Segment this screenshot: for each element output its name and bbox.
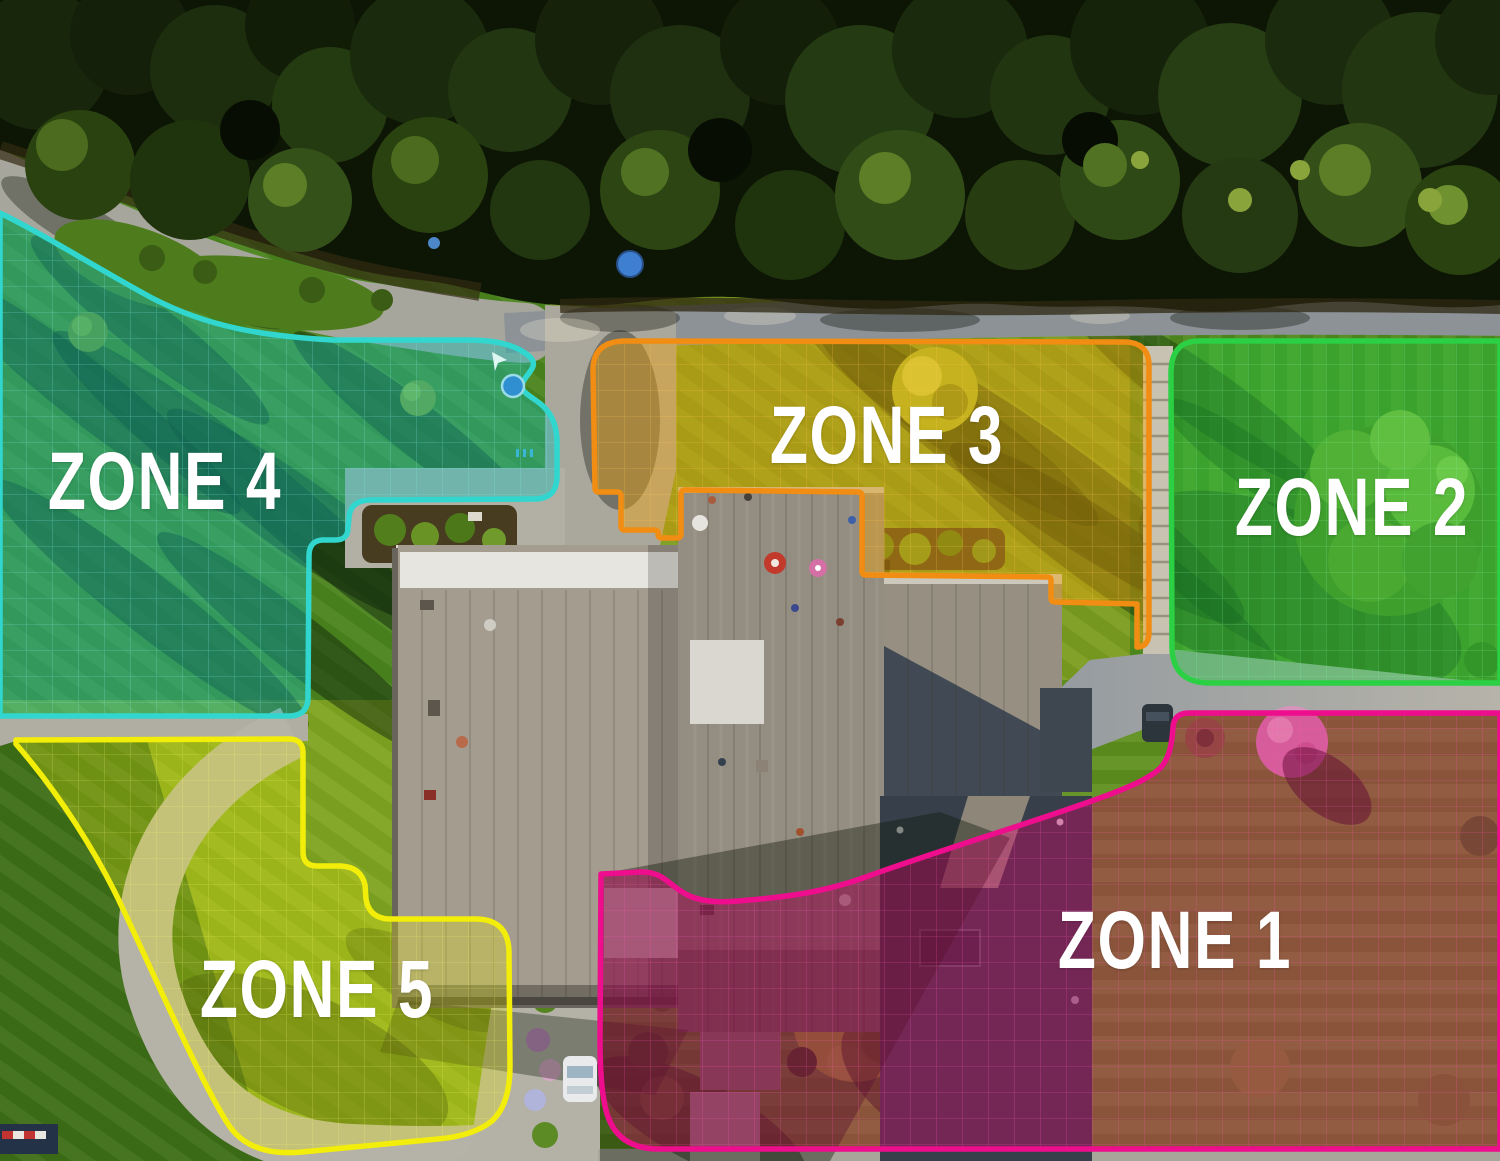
zone-5-label: ZONE 5 <box>200 943 434 1037</box>
person <box>456 736 468 748</box>
pond-icon <box>617 251 643 277</box>
pool-toy-icon <box>428 237 440 249</box>
aerial-zone-map: ZONE 1 ZONE 2 ZONE 3 ZONE 4 ZONE 5 <box>0 0 1500 1161</box>
zone-4-label: ZONE 4 <box>48 435 282 529</box>
zone-1-label: ZONE 1 <box>1058 894 1292 988</box>
striped-barrier <box>0 1124 58 1154</box>
zone-3-label: ZONE 3 <box>770 389 1004 483</box>
white-car <box>563 1056 597 1102</box>
right-wing-roof <box>884 574 1092 796</box>
forest-canopy <box>0 0 1500 343</box>
dark-suv <box>1142 704 1173 742</box>
zone-2-label: ZONE 2 <box>1235 461 1469 555</box>
